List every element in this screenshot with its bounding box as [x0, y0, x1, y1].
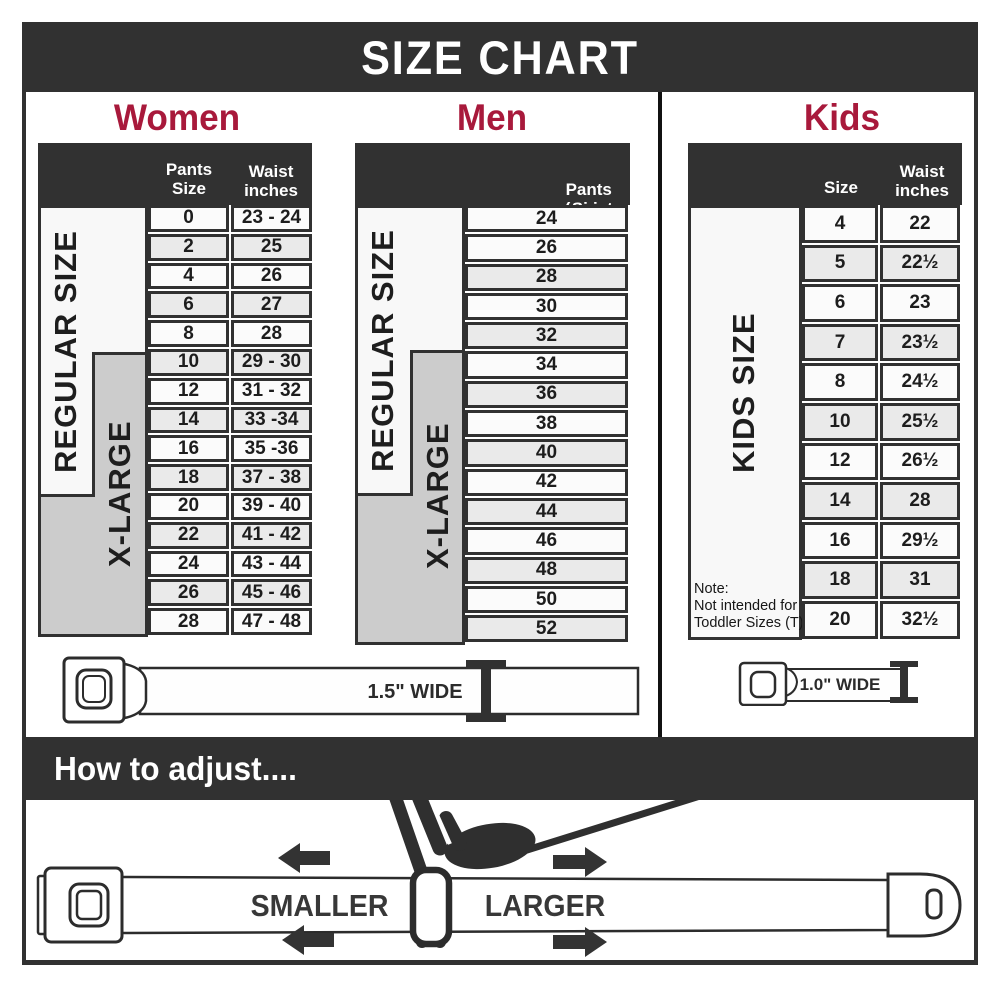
how-to-adjust-heading: How to adjust.... [54, 750, 297, 788]
pants-size-cell: 4 [148, 263, 229, 290]
women-heading: Women [68, 97, 287, 139]
pants-size-cell: 22 [148, 522, 229, 549]
waist-inches-cell: 32½ [880, 601, 960, 639]
kids-table-header: Size Waist inches [688, 143, 962, 205]
pants-size-cell: 28 [465, 264, 628, 291]
pants-size-cell: 8 [148, 320, 229, 347]
adult-belt-width-label: 1.5" WIDE [335, 681, 495, 704]
waist-inches-cell: 26½ [880, 443, 960, 481]
size-cell: 5 [802, 245, 878, 283]
waist-inches-cell: 45 - 46 [231, 579, 312, 606]
kids-size-label: KIDS SIZE [694, 233, 794, 553]
title-bar: SIZE CHART [22, 22, 978, 92]
pants-size-cell: 46 [465, 527, 628, 554]
waist-inches-cell: 41 - 42 [231, 522, 312, 549]
seatbelt-buckle-icon [38, 868, 122, 942]
adjustment-illustration-section: SMALLER LARGER [22, 800, 978, 965]
pants-size-cell: 40 [465, 439, 628, 466]
belt-adjust-illustration [22, 800, 978, 965]
size-cell: 8 [802, 363, 878, 401]
pants-size-cell: 6 [148, 291, 229, 318]
men-heading: Men [383, 97, 602, 139]
waist-inches-cell: 29½ [880, 522, 960, 560]
pants-size-cell: 14 [148, 407, 229, 434]
kids-belt-width-label: 1.0" WIDE [780, 675, 900, 695]
waist-inches-cell: 25 [231, 234, 312, 261]
waist-inches-cell: 31 - 32 [231, 378, 312, 405]
women-pants-size-header: Pants Size [148, 160, 230, 198]
pants-size-cell: 44 [465, 498, 628, 525]
size-cell: 6 [802, 284, 878, 322]
waist-inches-cell: 28 [880, 482, 960, 520]
pants-size-cell: 48 [465, 557, 628, 584]
pants-size-cell: 26 [465, 234, 628, 261]
pants-size-cell: 2 [148, 234, 229, 261]
kids-size-table: Size Waist inches KIDS SIZE Note: Not in… [688, 143, 962, 640]
kids-section-divider [658, 92, 662, 737]
seatbelt-buckle-icon [64, 658, 124, 722]
men-regular-size-label: REGULAR SIZE [359, 207, 407, 495]
waist-inches-cell: 31 [880, 561, 960, 599]
waist-inches-cell: 24½ [880, 363, 960, 401]
waist-inches-cell: 37 - 38 [231, 464, 312, 491]
women-table-body: 023 - 242254266278281029 - 301231 - 3214… [148, 205, 312, 635]
pants-size-cell: 32 [465, 322, 628, 349]
waist-inches-cell: 25½ [880, 403, 960, 441]
waist-inches-cell: 23½ [880, 324, 960, 362]
pants-size-cell: 16 [148, 435, 229, 462]
section-right-border [974, 92, 978, 737]
size-cell: 16 [802, 522, 878, 560]
men-table-body: 242628303234363840424446485052 [465, 205, 628, 642]
women-xlarge-label: X-LARGE [96, 355, 144, 633]
section-left-border [22, 92, 26, 737]
women-regular-size-label: REGULAR SIZE [42, 209, 90, 495]
kids-size-header: Size [802, 178, 880, 197]
waist-inches-cell: 47 - 48 [231, 608, 312, 635]
smaller-label: SMALLER [251, 888, 380, 924]
belt-tip [888, 874, 960, 936]
kids-waist-header: Waist inches [884, 162, 960, 200]
waist-inches-cell: 43 - 44 [231, 551, 312, 578]
size-tables-section: Women Men Kids Pants Size Waist inches R… [22, 92, 978, 737]
pants-size-cell: 18 [148, 464, 229, 491]
pants-size-cell: 42 [465, 469, 628, 496]
size-cell: 18 [802, 561, 878, 599]
pants-size-cell: 30 [465, 293, 628, 320]
size-cell: 4 [802, 205, 878, 243]
pants-size-cell: 20 [148, 493, 229, 520]
larger-label: LARGER [481, 888, 610, 924]
men-xlarge-label: X-LARGE [414, 353, 462, 639]
size-chart-graphic: SIZE CHART Women Men Kids Pants Size Wai… [0, 0, 1000, 1000]
size-cell: 20 [802, 601, 878, 639]
waist-inches-cell: 26 [231, 263, 312, 290]
waist-inches-cell: 35 -36 [231, 435, 312, 462]
pants-size-cell: 36 [465, 381, 628, 408]
pants-size-cell: 12 [148, 378, 229, 405]
pants-size-cell: 26 [148, 579, 229, 606]
belt-tip-slot [927, 890, 941, 918]
kids-heading: Kids [733, 97, 952, 139]
waist-inches-cell: 39 - 40 [231, 493, 312, 520]
pants-size-cell: 34 [465, 351, 628, 378]
pants-size-cell: 0 [148, 205, 229, 232]
waist-inches-cell: 23 - 24 [231, 205, 312, 232]
waist-inches-cell: 22 [880, 205, 960, 243]
waist-inches-cell: 27 [231, 291, 312, 318]
waist-inches-cell: 29 - 30 [231, 349, 312, 376]
arrow-right-icon [553, 847, 607, 877]
pants-size-cell: 52 [465, 615, 628, 642]
pants-size-cell: 24 [148, 551, 229, 578]
waist-inches-cell: 22½ [880, 245, 960, 283]
size-cell: 12 [802, 443, 878, 481]
waist-inches-cell: 33 -34 [231, 407, 312, 434]
arrow-left-icon [278, 843, 330, 873]
women-size-table: Pants Size Waist inches REGULAR SIZE X-L… [38, 143, 312, 637]
waist-inches-cell: 23 [880, 284, 960, 322]
pants-size-cell: 24 [465, 205, 628, 232]
women-table-header: Pants Size Waist inches [38, 143, 312, 205]
size-cell: 7 [802, 324, 878, 362]
pants-size-cell: 50 [465, 586, 628, 613]
kids-table-body: 422522½623723½824½1025½1226½14281629½183… [802, 205, 960, 639]
men-size-table: Pants Size(waist inches) REGULAR SIZE X-… [355, 143, 630, 645]
size-cell: 14 [802, 482, 878, 520]
men-table-header: Pants Size(waist inches) [355, 143, 630, 205]
size-cell: 10 [802, 403, 878, 441]
belt-adjuster [413, 870, 449, 948]
pants-size-cell: 10 [148, 349, 229, 376]
pants-size-cell: 38 [465, 410, 628, 437]
women-waist-header: Waist inches [232, 162, 310, 200]
waist-inches-cell: 28 [231, 320, 312, 347]
pants-size-cell: 28 [148, 608, 229, 635]
how-to-adjust-bar: How to adjust.... [22, 737, 978, 800]
men-pants-size-header: Pants Size(waist inches) [465, 180, 630, 199]
page-title: SIZE CHART [361, 30, 639, 85]
kids-note: Note: Not intended for Toddler Sizes (T) [694, 581, 810, 632]
